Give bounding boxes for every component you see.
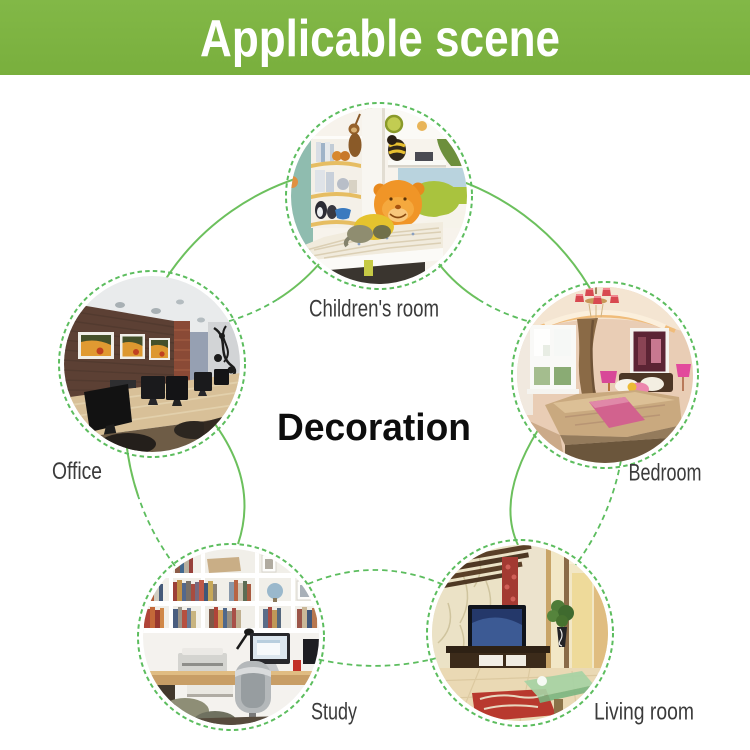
svg-text:Living room: Living room <box>594 699 694 726</box>
svg-text:Applicable scene: Applicable scene <box>200 10 560 68</box>
svg-text:Study: Study <box>311 699 357 726</box>
svg-text:Children's room: Children's room <box>309 296 439 323</box>
svg-text:Decoration: Decoration <box>277 407 471 449</box>
svg-text:Bedroom: Bedroom <box>629 460 702 487</box>
svg-text:Office: Office <box>52 458 102 485</box>
